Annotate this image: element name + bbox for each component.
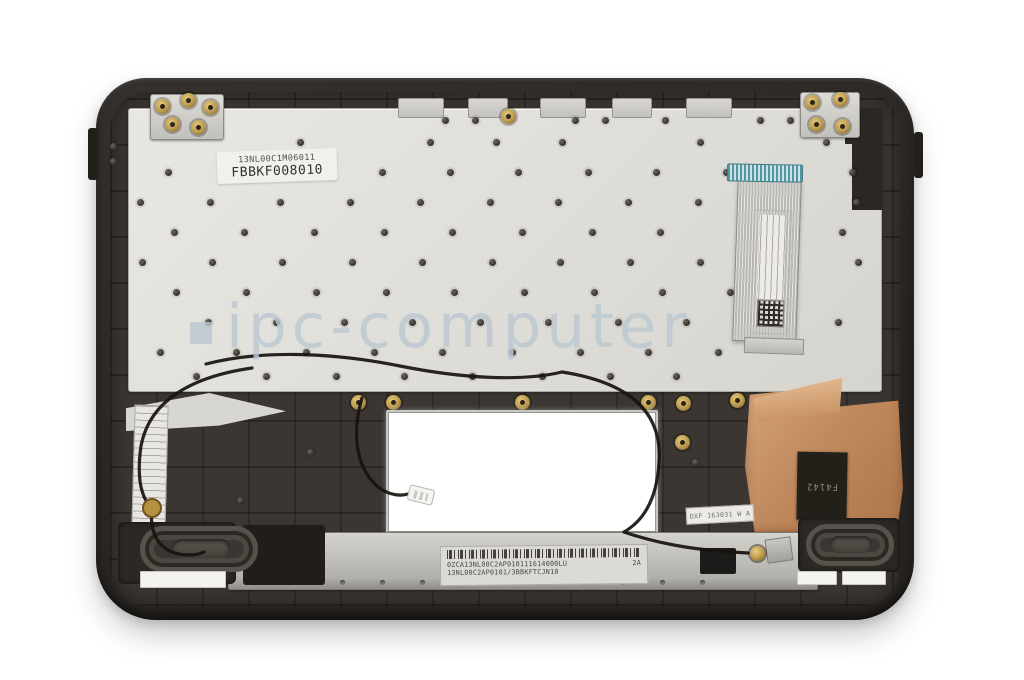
brass-screw-insert — [641, 395, 656, 410]
brass-screw-insert — [203, 100, 218, 115]
ribbon-label-qr-code — [757, 300, 785, 328]
screw — [545, 319, 552, 326]
screw — [757, 117, 764, 124]
brass-screw-insert — [501, 109, 516, 124]
brass-screw-insert — [165, 117, 180, 132]
barcode — [447, 548, 641, 559]
corner-sticker-text: DXF 163031 W A — [690, 509, 751, 520]
screw — [585, 169, 592, 176]
brass-screw-insert — [676, 396, 691, 411]
speaker-left-slot — [172, 539, 230, 558]
screw — [379, 169, 386, 176]
screw — [237, 497, 244, 504]
brass-screw-insert — [833, 92, 848, 107]
brass-screw-insert — [181, 93, 196, 108]
brass-screw-insert — [515, 395, 530, 410]
screw — [472, 117, 479, 124]
screw — [297, 139, 304, 146]
corner-sticker: DXF 163031 W A — [686, 504, 755, 525]
bracket-hole — [380, 580, 385, 585]
screw — [381, 229, 388, 236]
screw — [207, 199, 214, 206]
screw — [205, 319, 212, 326]
screw — [607, 373, 614, 380]
plate-tab — [612, 98, 652, 118]
speaker-right-label — [842, 571, 886, 585]
screw — [509, 349, 516, 356]
brass-screw-insert — [191, 120, 206, 135]
screw — [439, 349, 446, 356]
screw — [341, 319, 348, 326]
black-tape-patch — [700, 548, 736, 574]
screw — [451, 289, 458, 296]
copper-foil-tag: F4142 — [796, 452, 847, 521]
screw — [311, 229, 318, 236]
screw — [233, 349, 240, 356]
bracket-sticker-suffix: 2A — [632, 559, 641, 567]
screw — [539, 373, 546, 380]
frame-peg-left — [88, 128, 98, 180]
ribbon-connector-teal — [727, 163, 803, 182]
screw — [835, 319, 842, 326]
screw — [279, 259, 286, 266]
screw — [193, 373, 200, 380]
screw — [489, 259, 496, 266]
brass-screw-insert — [809, 117, 824, 132]
screw — [110, 158, 117, 165]
screw — [572, 117, 579, 124]
screw — [419, 259, 426, 266]
screw — [303, 349, 310, 356]
screw — [662, 117, 669, 124]
bracket-barcode-sticker: 0ZCA13NL00C2AP010111614000LU 2A 13NL00C2… — [440, 544, 648, 586]
screw — [615, 319, 622, 326]
keyboard-plate-sticker: 13NL00C1M06011 FBBKF008010 — [216, 148, 337, 184]
screw — [442, 117, 449, 124]
screw — [697, 259, 704, 266]
screw — [625, 199, 632, 206]
screw — [417, 199, 424, 206]
bracket-hole — [700, 580, 705, 585]
screw — [839, 229, 846, 236]
bracket-hole — [340, 580, 345, 585]
screw — [263, 373, 270, 380]
screw — [157, 349, 164, 356]
screw — [333, 373, 340, 380]
touchpad-flex-cable — [131, 405, 168, 532]
screw — [449, 229, 456, 236]
screw — [855, 259, 862, 266]
screw — [559, 139, 566, 146]
screw — [383, 289, 390, 296]
screw — [521, 289, 528, 296]
screw — [427, 139, 434, 146]
screw — [715, 349, 722, 356]
sticker-line-2: FBBKF008010 — [231, 162, 323, 180]
screw — [469, 373, 476, 380]
screw — [307, 449, 314, 456]
screw — [645, 349, 652, 356]
brass-screw-insert — [835, 119, 850, 134]
plate-tab — [686, 98, 732, 118]
ribbon-stiffener — [744, 337, 805, 355]
screw — [243, 289, 250, 296]
screw — [209, 259, 216, 266]
screw — [137, 199, 144, 206]
screw — [241, 229, 248, 236]
screw — [487, 199, 494, 206]
screw — [602, 117, 609, 124]
screw — [165, 169, 172, 176]
brass-screw-insert — [805, 95, 820, 110]
screw — [493, 139, 500, 146]
touchpad-cutout-opening — [386, 410, 658, 534]
screw — [371, 349, 378, 356]
screw — [659, 289, 666, 296]
screw — [173, 289, 180, 296]
bracket-hole — [660, 580, 665, 585]
speaker-right-slot — [830, 536, 872, 553]
speaker-left-label — [140, 571, 226, 588]
screw — [349, 259, 356, 266]
screw — [627, 259, 634, 266]
screw — [171, 229, 178, 236]
plate-tab — [540, 98, 586, 118]
copper-tag-text: F4142 — [806, 481, 838, 492]
screw — [787, 117, 794, 124]
screw — [557, 259, 564, 266]
screw — [519, 229, 526, 236]
frame-peg-right — [914, 132, 923, 178]
screw — [273, 319, 280, 326]
screw — [853, 199, 860, 206]
brass-screw-insert — [351, 395, 366, 410]
screw — [697, 139, 704, 146]
screw — [477, 319, 484, 326]
screw — [139, 259, 146, 266]
screw — [591, 289, 598, 296]
speaker-right-label — [797, 571, 837, 585]
screw — [692, 459, 699, 466]
screw — [695, 199, 702, 206]
screw — [673, 373, 680, 380]
screw — [657, 229, 664, 236]
screw — [849, 169, 856, 176]
screw — [823, 139, 830, 146]
screw — [577, 349, 584, 356]
brass-screw-insert — [675, 435, 690, 450]
screw — [447, 169, 454, 176]
product-photo-canvas: 13NL00C1M06011 FBBKF008010 F4142 0ZCA13N… — [0, 0, 1024, 680]
screw — [347, 199, 354, 206]
coax-mount-bracket — [764, 536, 793, 563]
screw — [683, 319, 690, 326]
plate-tab — [398, 98, 444, 118]
screw — [277, 199, 284, 206]
screw — [401, 373, 408, 380]
screw — [653, 169, 660, 176]
screw — [313, 289, 320, 296]
screw — [515, 169, 522, 176]
screw — [110, 143, 117, 150]
screw — [409, 319, 416, 326]
bracket-sticker-line-2: 13NL00C2AP0101/3BBKFTCJN10 — [447, 567, 641, 577]
screw — [555, 199, 562, 206]
brass-screw-insert — [730, 393, 745, 408]
brass-screw-insert — [386, 395, 401, 410]
brass-screw-insert — [155, 99, 170, 114]
coax-antenna-connector — [750, 546, 765, 561]
screw — [589, 229, 596, 236]
bracket-hole — [420, 580, 425, 585]
